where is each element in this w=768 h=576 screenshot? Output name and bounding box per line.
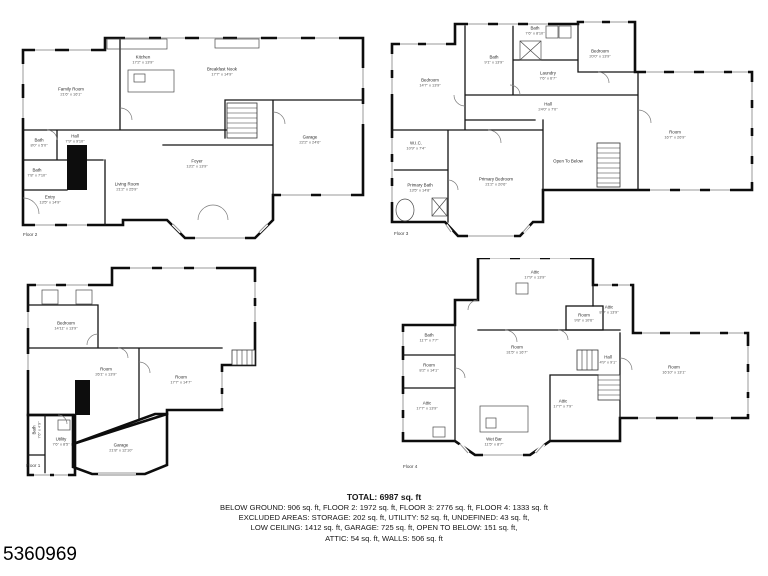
room-label-bath: Bath 7'8" x 7'10" [27,168,46,177]
room-label-bedroom: Bedroom 14'11" x 13'9" [54,321,77,330]
floor-label: Floor 2 [23,232,37,237]
floor-2-plan-drawing [15,12,368,248]
room-label-wet-bar: Wet Bar 11'5" x 8'7" [485,437,504,446]
room-label-bedroom: Bedroom 14'7" x 13'9" [419,78,440,87]
closet [76,290,92,304]
room-label-room: Room 17'7" x 14'7" [170,375,191,384]
room-label-foyer: Foyer 13'2" x 13'9" [186,159,207,168]
floor-1-stairs [232,350,255,365]
floor-label: Floor 1 [26,463,40,468]
room-label-bath: Bath 9'1" x 13'9" [484,55,503,64]
room-label-hall: Hall 4'9" x 9'1" [599,355,616,364]
room-label-utility: Utility 7'6" x 8'5" [52,437,69,446]
kitchen-counter [107,39,167,49]
floorplan-sheet: Kitchen 17'2" x 13'9" Breakfast Nook 17'… [0,0,768,576]
floor-label: Floor 4 [403,464,417,469]
room-label-entry: Entry 13'5" x 14'9" [39,195,60,204]
room-label-bath: Bath 7'6" x 8'10" [525,26,544,35]
kitchen-island [128,70,174,92]
floor-4-walls [403,258,748,455]
room-label-primary-bath: Primary Bath 13'5" x 14'8" [407,183,432,192]
excluded-areas-line-1: EXCLUDED AREAS: STORAGE: 202 sq. ft, UTI… [0,513,768,523]
room-label-room: Room 31'5" x 16'7" [506,345,527,354]
floorplan-floor-2: Kitchen 17'2" x 13'9" Breakfast Nook 17'… [15,12,368,248]
excluded-areas-line-2: LOW CEILING: 1412 sq. ft, GARAGE: 725 sq… [0,523,768,533]
room-label-attic: Attic 17'9" x 13'9" [524,270,545,279]
closet [42,290,58,304]
bathtub [396,199,414,221]
room-label-bedroom: Bedroom 20'0" x 13'9" [589,49,610,58]
room-label-room: Room 9'8" x 10'6" [574,313,593,322]
room-label-room: Room 16'10" x 13'1" [662,365,686,374]
floor-2-stairs [227,103,257,138]
floorplan-floor-4: Attic 17'9" x 13'9" Attic 8'9" x 13'9" B… [398,258,762,470]
floorplan-floor-3: Bedroom 14'7" x 13'9" Bath 9'1" x 13'9" … [388,10,766,250]
floorplan-floor-1: Bedroom 14'11" x 13'9" Room 26'1" x 13'9… [18,262,268,478]
room-label-garage: Garage 21'8" x 12'10" [109,443,133,452]
room-label-hall: Hall 7'9" x 9'10" [65,134,84,143]
room-label-garage: Garage 22'2" x 24'6" [299,135,320,144]
room-label-breakfast-nook: Breakfast Nook 17'7" x 14'9" [207,67,237,76]
washer [546,26,558,38]
column [516,283,528,294]
dryer [559,26,571,38]
room-label-kitchen: Kitchen 17'2" x 13'9" [132,55,153,64]
floor-3-walls [392,22,752,236]
total-area-line: TOTAL: 6987 sq. ft [0,492,768,503]
utility-equipment [58,420,70,430]
floor-4-plan-drawing [398,258,762,470]
kitchen-counter [215,39,259,48]
excluded-areas-line-3: ATTIC: 54 sq. ft, WALLS: 506 sq. ft [0,534,768,544]
room-label-bath: Bath 11'7" x 7'7" [420,333,439,342]
floor-4-fixtures [433,283,528,437]
room-label-laundry: Laundry 7'6" x 6'7" [539,71,556,80]
room-label-bath: Bath 8'0" x 5'0" [30,138,47,147]
room-label-open-to-below: Open To Below [553,160,583,165]
floor-3-plan-drawing [388,10,766,250]
chimney [67,145,87,190]
room-label-hall: Hall 24'0" x 7'0" [538,102,557,111]
room-label-wic: W.I.C. 10'9" x 7'4" [406,141,425,150]
room-label-room: Room 26'1" x 13'9" [95,367,116,376]
wet-bar-sink [486,418,496,428]
room-label-attic: Attic 17'7" x 13'9" [416,401,437,410]
floor-1-fixtures [42,290,92,430]
floor-3-stairs [597,143,620,187]
room-label-attic: Attic 8'9" x 13'9" [599,305,618,314]
floor-3-doors [448,72,651,190]
room-label-family-room: Family Room 21'6" x 16'1" [58,87,84,96]
room-label-bath: Bath 7'6" x 4'9" [32,421,41,438]
floor-areas-line: BELOW GROUND: 906 sq. ft, FLOOR 2: 1972 … [0,503,768,513]
chimney [75,380,90,415]
equipment [433,427,445,437]
room-label-primary-bedroom: Primary Bedroom 21'2" x 20'6" [479,177,513,186]
listing-id: 5360969 [3,544,77,566]
room-label-room: Room 16'7" x 26'9" [664,130,685,139]
area-summary: TOTAL: 6987 sq. ft BELOW GROUND: 906 sq.… [0,492,768,544]
floor-label: Floor 3 [394,231,408,236]
room-label-living-room: Living Room 21'2" x 25'9" [115,182,139,191]
room-label-room: Room 8'2" x 14'1" [419,363,438,372]
room-label-attic: Attic 17'7" x 7'9" [553,399,572,408]
floor-3-windows [392,22,752,236]
kitchen-sink [134,74,145,82]
